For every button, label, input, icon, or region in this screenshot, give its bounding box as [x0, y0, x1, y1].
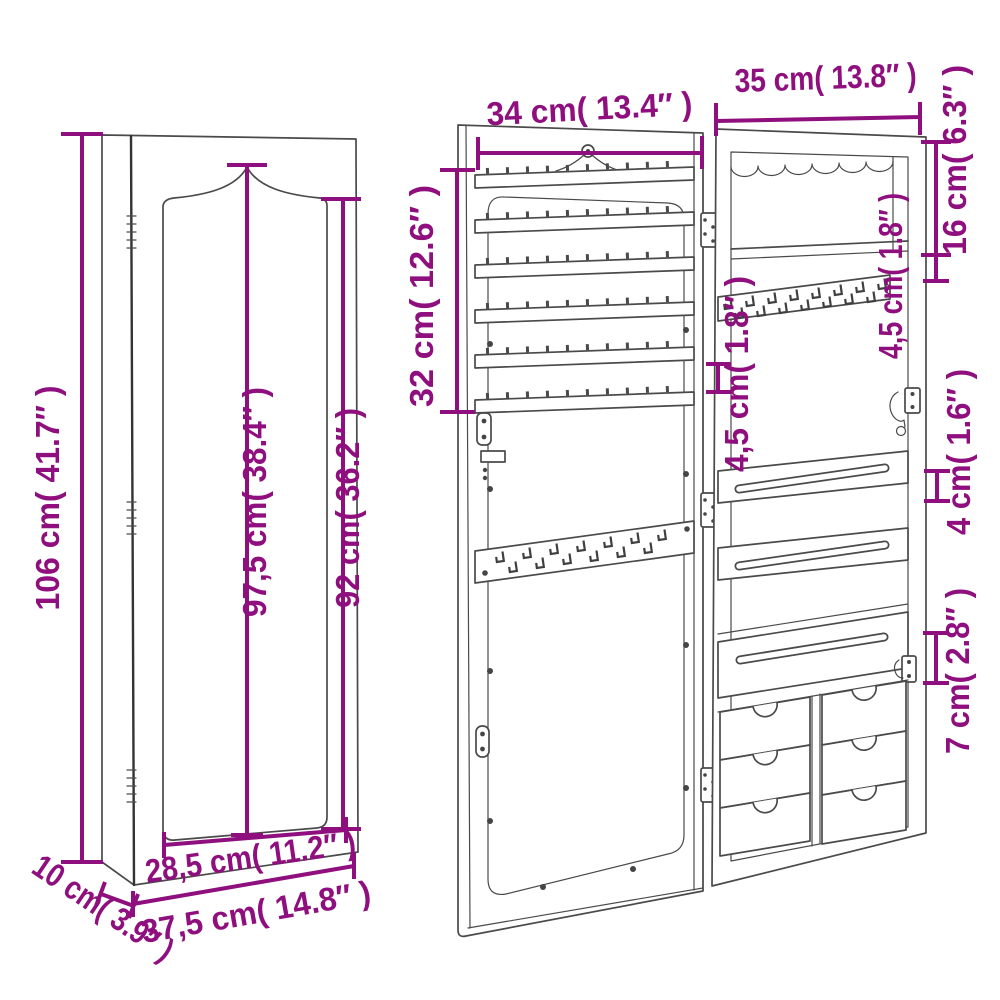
dim-mirror-height-label: 97,5 cm( 38.4″ ): [236, 387, 273, 617]
dim-cabinet-width-label: 35 cm( 13.8″ ): [734, 56, 917, 99]
screw-dot: [683, 785, 689, 791]
screw-dot: [540, 884, 546, 890]
jewelry-cabinet-dimension-diagram: 106 cm( 41.7″ ) 97,5 cm( 38.4″ ) 92 cm( …: [0, 0, 1000, 1000]
screw-dot: [487, 668, 493, 674]
cabinet-box-outline: [102, 135, 358, 885]
dim-top-compartment-height: 16 cm( 6.3″ ): [921, 65, 973, 255]
dim-shelf-gap-label: 4,5 cm( 1.8″ ): [872, 193, 909, 359]
dim-earring-rail-gap-label: 4,5 cm( 1.8″ ): [718, 276, 755, 472]
dim-earring-rack-label: 32 cm( 12.6″ ): [403, 185, 440, 407]
dim-bottom-tray-label: 7 cm( 2.8″ ): [939, 588, 976, 754]
screw-dot: [487, 818, 493, 824]
door-handle: [476, 726, 489, 757]
screw-dot: [487, 341, 493, 347]
cabinet-door-interior: [458, 125, 703, 936]
dim-earring-rail-gap: 4,5 cm( 1.8″ ): [706, 276, 755, 472]
screw-dot: [683, 471, 689, 477]
dim-door-width-label: 34 cm( 13.4″ ): [486, 85, 694, 133]
dimension-diagram-page: 106 cm( 41.7″ ) 97,5 cm( 38.4″ ) 92 cm( …: [0, 0, 1000, 1000]
dim-necklace-shelf-height: 4 cm( 1.6″ ): [924, 369, 977, 535]
closed-cabinet-view: 106 cm( 41.7″ ) 97,5 cm( 38.4″ ) 92 cm( …: [26, 134, 374, 968]
dim-overall-height: 106 cm( 41.7″ ): [29, 134, 103, 862]
dim-cabinet-interior-width: 35 cm( 13.8″ ): [716, 56, 920, 136]
open-cabinet-view: 34 cm( 13.4″ ) 35 cm( 13.8″ ) 32 cm( 12.…: [403, 56, 977, 937]
dim-overall-height-label: 106 cm( 41.7″ ): [29, 386, 66, 611]
screw-dot: [487, 486, 493, 492]
dim-bottom-tray-height: 7 cm( 2.8″ ): [923, 588, 976, 754]
screw-dot: [683, 327, 689, 333]
screw-dot: [683, 642, 689, 648]
dim-door-height-label: 92 cm( 36.2″ ): [329, 408, 366, 608]
screw-dot: [630, 866, 636, 872]
dim-top-compartment-label: 16 cm( 6.3″ ): [936, 65, 973, 255]
dim-necklace-shelf-label: 4 cm( 1.6″ ): [940, 369, 977, 535]
